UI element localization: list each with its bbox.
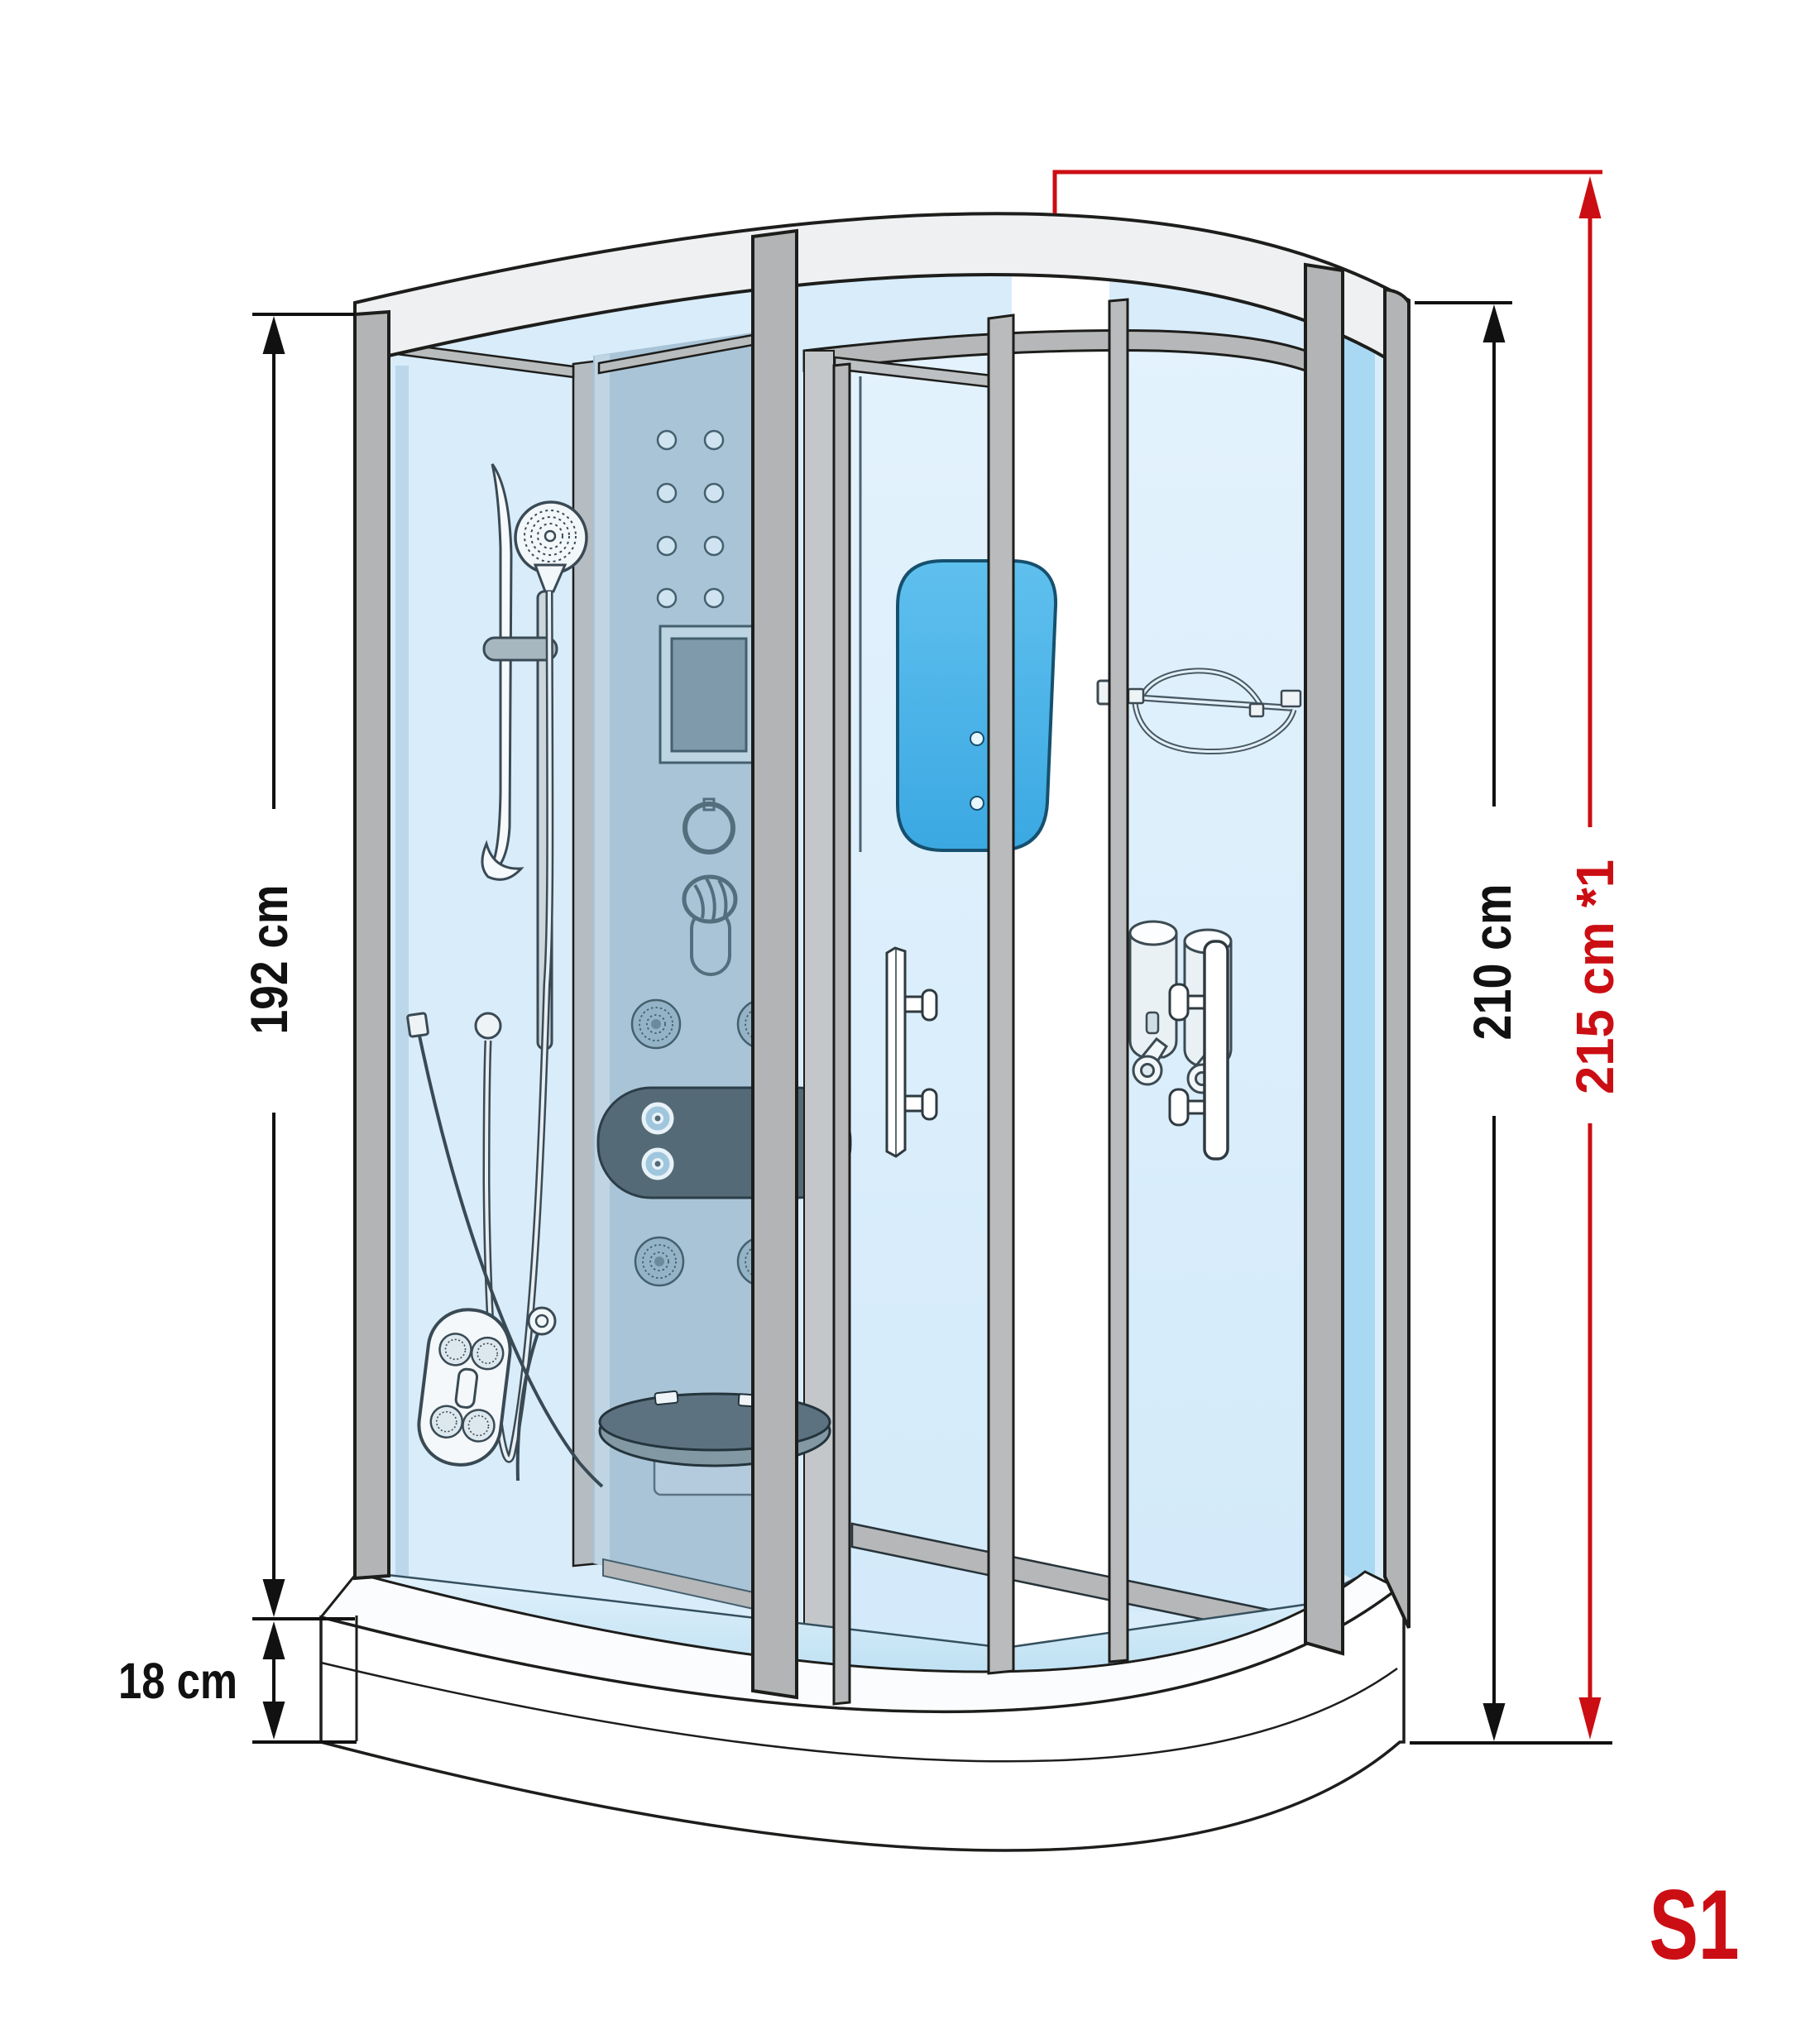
svg-text:S1: S1 [1650,1869,1740,1980]
svg-text:192 cm: 192 cm [241,885,299,1035]
svg-text:18 cm: 18 cm [118,1653,237,1709]
svg-text:215 cm *1: 215 cm *1 [1565,859,1625,1094]
svg-text:210 cm: 210 cm [1463,884,1522,1041]
